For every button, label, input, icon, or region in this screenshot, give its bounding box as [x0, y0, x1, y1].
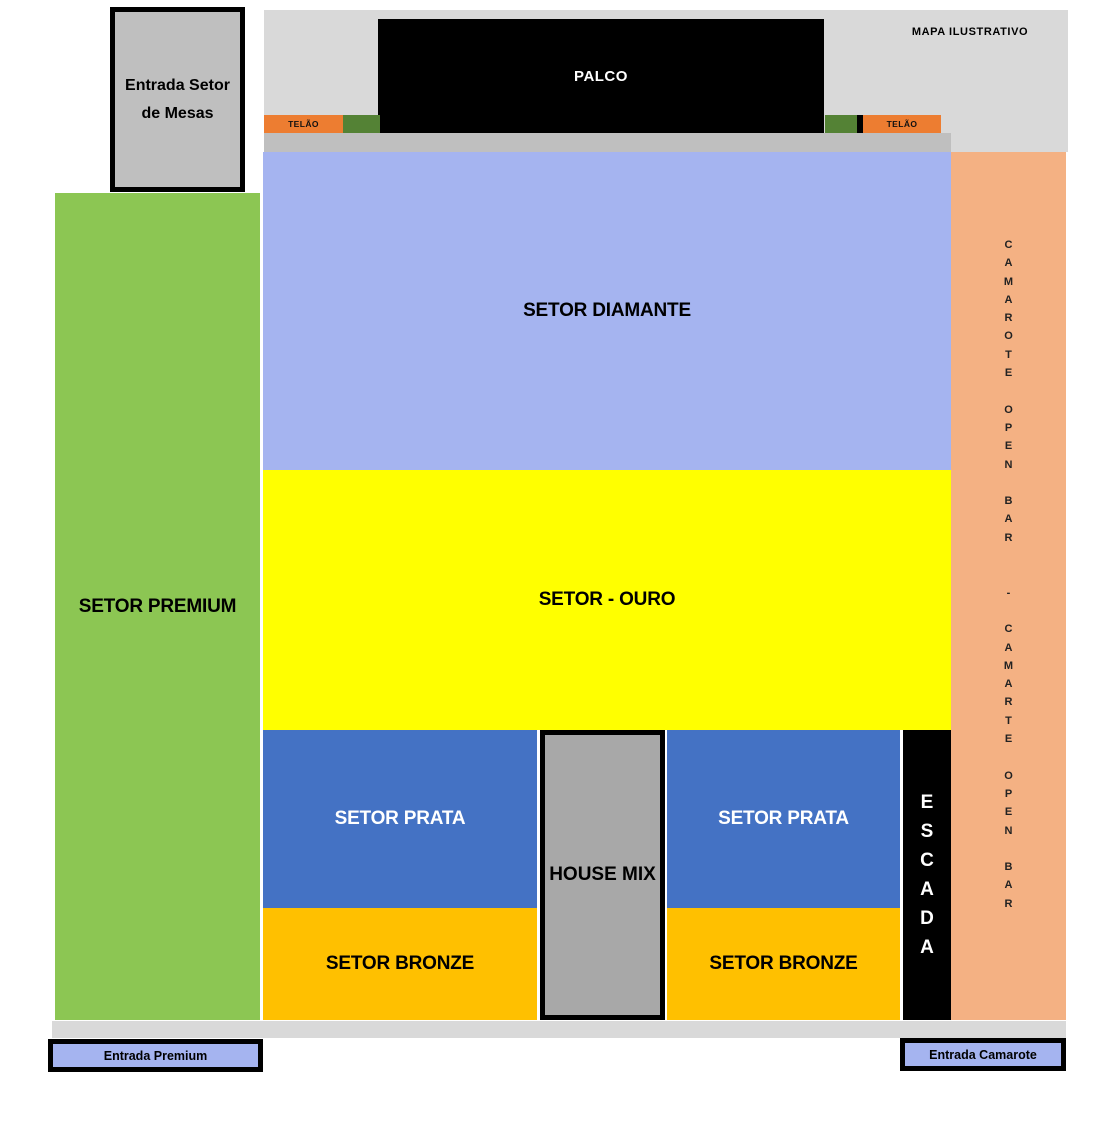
entrance-mesas: Entrada Setor de Mesas — [110, 7, 245, 192]
sector-prata-left-label: SETOR PRATA — [335, 808, 466, 830]
screen-left-green-block — [343, 115, 380, 133]
sector-premium-label: SETOR PREMIUM — [79, 596, 237, 618]
escada-strip: E S C A D A — [903, 730, 951, 1020]
sector-bronze-right: SETOR BRONZE — [667, 908, 900, 1020]
sector-prata-right: SETOR PRATA — [667, 730, 900, 908]
sector-ouro: SETOR - OURO — [263, 470, 951, 730]
bottom-walkway — [52, 1021, 1066, 1038]
map-note: MAPA ILUSTRATIVO — [880, 24, 1060, 40]
sector-bronze-left: SETOR BRONZE — [263, 908, 537, 1020]
house-mix-label: HOUSE MIX — [549, 864, 656, 886]
screen-left-label: TELÃO — [264, 115, 343, 133]
screen-left: TELÃO — [264, 115, 343, 133]
stage-palco: PALCO — [378, 19, 824, 133]
camarote-open-bar-strip: C A M A R O T E O P E N B A R - C A M A … — [951, 152, 1066, 1020]
screen-right-label: TELÃO — [863, 115, 941, 133]
sector-prata-right-label: SETOR PRATA — [718, 808, 849, 830]
house-mix-booth: HOUSE MIX — [540, 730, 665, 1020]
entrance-premium: Entrada Premium — [48, 1039, 263, 1072]
sector-prata-left: SETOR PRATA — [263, 730, 537, 908]
sector-premium: SETOR PREMIUM — [55, 193, 260, 1020]
camarote-open-bar-label: C A M A R O T E O P E N B A R - C A M A … — [951, 152, 1066, 913]
screen-right-green-block — [825, 115, 857, 133]
screen-right: TELÃO — [863, 115, 941, 133]
sector-diamante: SETOR DIAMANTE — [263, 152, 951, 470]
sector-ouro-label: SETOR - OURO — [539, 589, 676, 611]
entrance-camarote: Entrada Camarote — [900, 1038, 1066, 1071]
stage-apron — [264, 133, 951, 152]
sector-diamante-label: SETOR DIAMANTE — [523, 300, 691, 322]
sector-bronze-left-label: SETOR BRONZE — [326, 953, 474, 975]
sector-bronze-right-label: SETOR BRONZE — [709, 953, 857, 975]
venue-map: MAPA ILUSTRATIVO PALCO TELÃO TELÃO Entra… — [0, 0, 1116, 1146]
